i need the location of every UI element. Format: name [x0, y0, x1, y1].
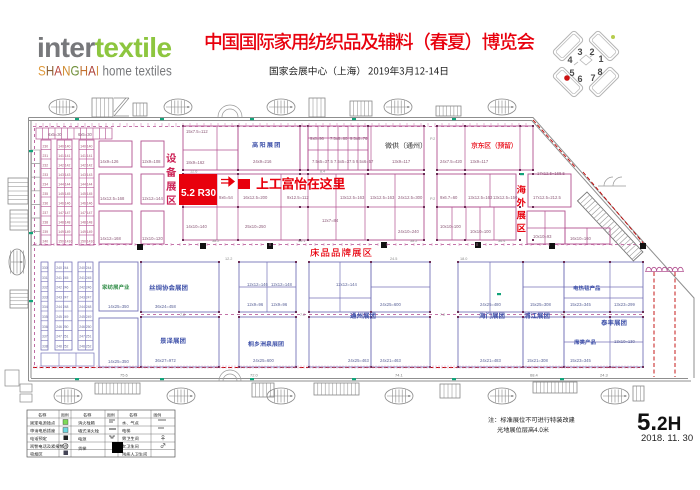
svg-text:24x25=463: 24x25=463	[348, 358, 370, 363]
svg-text:24x9=216: 24x9=216	[253, 159, 272, 164]
svg-text:141 141: 141 141	[80, 154, 92, 158]
svg-text:1: 1	[598, 54, 603, 64]
svg-text:247 251: 247 251	[79, 335, 91, 339]
svg-text:240 244: 240 244	[56, 266, 68, 270]
svg-text:7.2: 7.2	[300, 313, 305, 317]
svg-text:146 146: 146 146	[58, 202, 70, 206]
svg-text:3: 3	[577, 47, 582, 57]
svg-text:7.5x5=37.5: 7.5x5=37.5	[334, 159, 356, 164]
svg-text:36.4: 36.4	[498, 239, 505, 243]
svg-text:12x7=84: 12x7=84	[322, 218, 339, 223]
svg-text:239: 239	[43, 230, 49, 234]
svg-text:12x10=120: 12x10=120	[142, 236, 164, 241]
svg-text:13x12.5=163: 13x12.5=163	[340, 195, 365, 200]
svg-text:15x23=345: 15x23=345	[570, 358, 592, 363]
svg-text:13x12.5=163: 13x12.5=163	[370, 195, 395, 200]
svg-text:13x10=130: 13x10=130	[614, 339, 636, 344]
svg-text:14x12.5=168: 14x12.5=168	[100, 196, 125, 201]
svg-text:24.5: 24.5	[390, 257, 397, 261]
svg-text:9.5x8=76: 9.5x8=76	[350, 136, 368, 141]
svg-text:332: 332	[42, 286, 48, 290]
svg-text:149 149: 149 149	[58, 230, 70, 234]
svg-text:12x12=148: 12x12=148	[271, 282, 293, 287]
svg-text:238: 238	[43, 221, 49, 225]
svg-text:9x8=96: 9x8=96	[310, 136, 325, 141]
svg-text:12x9=96: 12x9=96	[271, 302, 288, 307]
svg-text:6x5=30: 6x5=30	[48, 132, 63, 137]
svg-text:143 143: 143 143	[80, 173, 92, 177]
svg-text:245 249: 245 249	[79, 315, 91, 319]
svg-text:245 249: 245 249	[56, 315, 68, 319]
svg-text:330: 330	[42, 266, 48, 270]
svg-text:242 246: 242 246	[56, 286, 68, 290]
svg-text:150 1410: 150 1410	[58, 240, 72, 244]
svg-text:335: 335	[42, 315, 48, 319]
svg-text:9x6.7=60: 9x6.7=60	[440, 195, 458, 200]
svg-text:148 148: 148 148	[80, 221, 92, 225]
svg-text:145 145: 145 145	[80, 192, 92, 196]
svg-text:16x10=160: 16x10=160	[570, 236, 592, 241]
svg-text:24x25=600: 24x25=600	[253, 358, 275, 363]
svg-text:10x10=100: 10x10=100	[440, 224, 462, 229]
svg-text:240 244: 240 244	[79, 266, 91, 270]
svg-text:7: 7	[590, 73, 595, 83]
svg-text:12x12=144: 12x12=144	[142, 196, 164, 201]
svg-text:244 248: 244 248	[79, 305, 91, 309]
svg-text:7.2: 7.2	[180, 313, 185, 317]
svg-text:14x10=140: 14x10=140	[186, 224, 208, 229]
svg-text:241 245: 241 245	[79, 276, 91, 280]
svg-text:14x12=168: 14x12=168	[100, 236, 122, 241]
svg-text:12x9=96: 12x9=96	[247, 302, 264, 307]
svg-text:236: 236	[43, 202, 49, 206]
svg-text:13x23=299: 13x23=299	[614, 302, 636, 307]
svg-text:144 144: 144 144	[58, 183, 70, 187]
svg-text:9x6=54: 9x6=54	[219, 195, 234, 200]
svg-text:8: 8	[597, 67, 602, 77]
svg-text:SHANGHAI home textiles: SHANGHAI home textiles	[38, 63, 172, 79]
svg-text:25x10=250: 25x10=250	[245, 224, 267, 229]
svg-text:230: 230	[43, 145, 49, 149]
svg-text:14x25=350: 14x25=350	[108, 359, 130, 364]
svg-text:232: 232	[43, 164, 49, 168]
svg-text:18.0: 18.0	[460, 257, 467, 261]
svg-text:142 142: 142 142	[80, 164, 92, 168]
svg-text:243 247: 243 247	[79, 295, 91, 299]
svg-text:intertextile: intertextile	[37, 32, 171, 63]
svg-text:12x12=146: 12x12=146	[247, 282, 269, 287]
svg-text:248 252: 248 252	[56, 344, 68, 348]
svg-text:9.5x6=57: 9.5x6=57	[356, 159, 374, 164]
svg-text:7.2: 7.2	[440, 313, 445, 317]
svg-text:4: 4	[567, 55, 572, 65]
svg-text:36x27=972: 36x27=972	[155, 358, 177, 363]
svg-text:P.2: P.2	[430, 137, 435, 141]
svg-text:10x10=93: 10x10=93	[533, 234, 552, 239]
svg-text:75.6: 75.6	[120, 373, 129, 378]
svg-text:24x21=463: 24x21=463	[380, 358, 402, 363]
svg-text:24x10=240: 24x10=240	[398, 229, 420, 234]
svg-text:5.2H: 5.2H	[637, 409, 681, 436]
svg-text:143 143: 143 143	[58, 173, 70, 177]
svg-text:24x7.5=420: 24x7.5=420	[440, 159, 463, 164]
svg-text:38.2: 38.2	[212, 239, 219, 243]
svg-text:68.4: 68.4	[530, 373, 539, 378]
svg-text:12x12=144: 12x12=144	[336, 282, 358, 287]
svg-text:2: 2	[589, 47, 594, 57]
svg-text:16x12.5=200: 16x12.5=200	[243, 195, 268, 200]
svg-text:6x5=30: 6x5=30	[78, 132, 93, 137]
svg-text:237: 237	[43, 211, 49, 215]
svg-text:38.2: 38.2	[410, 239, 417, 243]
svg-text:17x12.5=212.5: 17x12.5=212.5	[533, 195, 561, 200]
svg-text:24.3: 24.3	[600, 373, 609, 378]
svg-text:5: 5	[569, 68, 574, 78]
svg-text:7.2: 7.2	[560, 313, 565, 317]
svg-text:13x9=117: 13x9=117	[392, 159, 411, 164]
svg-text:145 145: 145 145	[58, 192, 70, 196]
svg-text:17x12.5=168.5: 17x12.5=168.5	[537, 171, 565, 176]
svg-text:72.0: 72.0	[250, 373, 259, 378]
svg-text:337: 337	[42, 335, 48, 339]
svg-text:235: 235	[43, 192, 49, 196]
svg-text:36x24=458: 36x24=458	[155, 304, 177, 309]
svg-text:246 250: 246 250	[56, 325, 68, 329]
svg-text:240: 240	[43, 240, 49, 244]
svg-text:149 149: 149 149	[80, 230, 92, 234]
svg-text:7.5x5=37.5: 7.5x5=37.5	[312, 159, 334, 164]
svg-text:231: 231	[43, 154, 49, 158]
svg-text:40.1: 40.1	[298, 239, 305, 243]
svg-text:146 146: 146 146	[80, 202, 92, 206]
svg-text:338: 338	[42, 344, 48, 348]
svg-text:331: 331	[42, 276, 48, 280]
svg-text:233: 233	[43, 173, 49, 177]
svg-text:14x9=126: 14x9=126	[100, 159, 119, 164]
svg-text:244 248: 244 248	[56, 305, 68, 309]
svg-text:140 140: 140 140	[58, 145, 70, 149]
svg-text:15x25=308: 15x25=308	[530, 302, 552, 307]
svg-text:334: 334	[42, 305, 48, 309]
svg-text:142 142: 142 142	[58, 164, 70, 168]
svg-text:247 251: 247 251	[56, 335, 68, 339]
svg-text:7.5x8=60: 7.5x8=60	[330, 136, 348, 141]
svg-text:333: 333	[42, 295, 48, 299]
svg-text:74.1: 74.1	[395, 373, 404, 378]
svg-text:24x12.5=300: 24x12.5=300	[398, 195, 423, 200]
svg-text:147 147: 147 147	[58, 211, 70, 215]
svg-text:12x9=108: 12x9=108	[142, 159, 161, 164]
svg-text:148 148: 148 148	[58, 221, 70, 225]
svg-text:P.2: P.2	[430, 197, 435, 201]
svg-text:14x25=350: 14x25=350	[108, 304, 130, 309]
svg-text:8.4: 8.4	[320, 170, 325, 174]
svg-text:147 147: 147 147	[80, 211, 92, 215]
svg-text:12.2: 12.2	[225, 257, 232, 261]
svg-text:18x9=162: 18x9=162	[186, 160, 205, 165]
svg-text:24x25=480: 24x25=480	[480, 302, 502, 307]
svg-text:248 252: 248 252	[79, 344, 91, 348]
svg-text:150 1410: 150 1410	[80, 240, 94, 244]
svg-text:246 250: 246 250	[79, 325, 91, 329]
svg-text:15x7.5=112: 15x7.5=112	[186, 129, 208, 134]
svg-text:24x25=600: 24x25=600	[380, 302, 402, 307]
svg-text:141 141: 141 141	[58, 154, 70, 158]
svg-text:10x10=100: 10x10=100	[470, 229, 492, 234]
svg-text:13x12.5=163: 13x12.5=163	[468, 195, 493, 200]
svg-text:24x21=483: 24x21=483	[480, 358, 502, 363]
svg-text:13x12.5=150: 13x12.5=150	[493, 195, 518, 200]
svg-text:140 140: 140 140	[80, 145, 92, 149]
svg-text:2018. 11. 30: 2018. 11. 30	[641, 433, 693, 444]
svg-text:15x21=308: 15x21=308	[527, 358, 549, 363]
svg-text:5.2 R30: 5.2 R30	[181, 188, 216, 199]
svg-text:144 144: 144 144	[80, 183, 92, 187]
svg-text:241 245: 241 245	[56, 276, 68, 280]
svg-text:242 246: 242 246	[79, 286, 91, 290]
svg-text:15x23=345: 15x23=345	[570, 302, 592, 307]
svg-text:234: 234	[43, 183, 49, 187]
svg-text:336: 336	[42, 325, 48, 329]
svg-text:243 247: 243 247	[56, 295, 68, 299]
svg-text:9x12.5=112: 9x12.5=112	[287, 195, 309, 200]
svg-text:13x9=117: 13x9=117	[470, 159, 489, 164]
svg-text:6: 6	[577, 74, 582, 84]
svg-text:12.6: 12.6	[190, 170, 197, 174]
